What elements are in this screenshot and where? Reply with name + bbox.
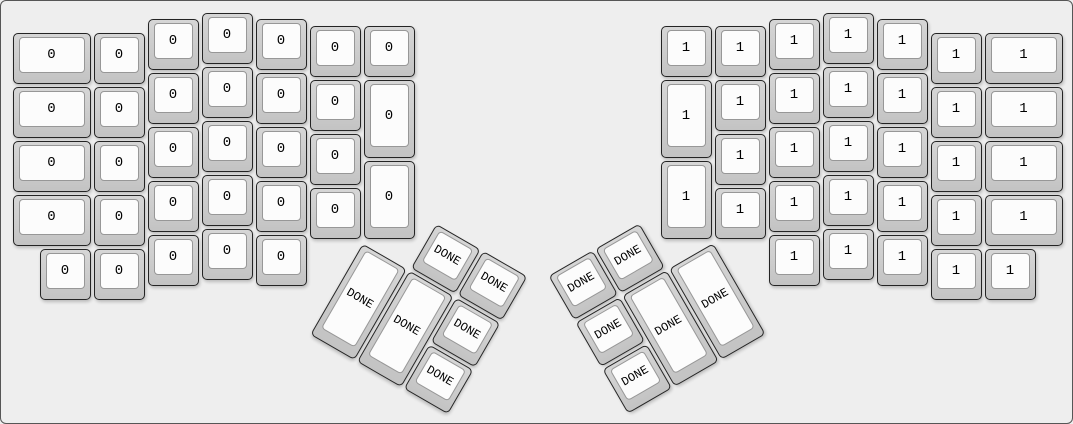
keycap-top-surface: 0 [262, 131, 301, 167]
keycap-top-surface: 0 [19, 37, 85, 73]
keycap-top-surface: 0 [208, 71, 247, 107]
keycap-label: 1 [952, 264, 960, 278]
keycap[interactable]: 0 [256, 127, 307, 178]
keycap[interactable]: 0 [13, 87, 91, 138]
keycap-label: DONE [345, 285, 376, 310]
keycap-top-surface: 1 [829, 179, 868, 215]
keycap-label: 1 [682, 190, 690, 204]
keycap-top-surface: 1 [937, 37, 976, 73]
keycap-top-surface: DONE [582, 303, 634, 354]
keycap-top-surface: DONE [468, 256, 520, 307]
keycap-top-surface: 1 [829, 125, 868, 161]
keycap-label: DONE [391, 312, 422, 337]
keycap-label: 1 [790, 196, 798, 210]
keycap-top-surface: 1 [883, 185, 922, 221]
keycap-top-surface: 0 [154, 239, 193, 275]
keycap-top-surface: 1 [721, 192, 760, 228]
keycap-top-surface: 0 [262, 239, 301, 275]
keycap-label: 0 [277, 142, 285, 156]
keycap[interactable]: 0 [256, 73, 307, 124]
keycap-top-surface: 0 [100, 91, 139, 127]
keycap-label: 0 [223, 82, 231, 96]
keycap-top-surface: 1 [721, 84, 760, 120]
keycap[interactable]: 1 [931, 87, 982, 138]
keycap-label: 0 [331, 203, 339, 217]
keycap[interactable]: 1 [877, 181, 928, 232]
keycap-label: 1 [1019, 48, 1027, 62]
keycap-top-surface: 0 [262, 77, 301, 113]
keycap[interactable]: 1 [661, 161, 712, 239]
keycap[interactable]: 1 [715, 80, 766, 131]
keycap-top-surface: 0 [154, 185, 193, 221]
keycap[interactable]: 1 [877, 73, 928, 124]
keycap-top-surface: 0 [100, 199, 139, 235]
keycap-top-surface: 1 [775, 23, 814, 59]
keycap-label: 0 [223, 244, 231, 258]
keycap-top-surface: 0 [208, 125, 247, 161]
keycap-label: 1 [736, 149, 744, 163]
keycap[interactable]: 1 [823, 175, 874, 226]
keycap-top-surface: 1 [721, 138, 760, 174]
keycap[interactable]: 1 [661, 80, 712, 158]
keycap-top-surface: 0 [262, 185, 301, 221]
keycap-label: 1 [952, 48, 960, 62]
keycap-top-surface: 0 [208, 233, 247, 269]
keycap-top-surface: 1 [667, 30, 706, 66]
keycap-label: 0 [115, 102, 123, 116]
keycap-label: 0 [385, 41, 393, 55]
keycap-top-surface: 0 [370, 84, 409, 147]
keycap-top-surface: 0 [100, 37, 139, 73]
keycap-top-surface: 1 [991, 145, 1057, 181]
keycap-label: 0 [115, 156, 123, 170]
keycap[interactable]: 1 [661, 26, 712, 77]
keycap-label: 1 [1006, 264, 1014, 278]
keycap[interactable]: 0 [202, 229, 253, 280]
keycap-top-surface: 0 [316, 192, 355, 228]
keycap[interactable]: 0 [310, 188, 361, 239]
keycap-label: 1 [1019, 102, 1027, 116]
keycap[interactable]: 1 [985, 33, 1063, 84]
keycap[interactable]: 0 [202, 175, 253, 226]
keycap-label: DONE [619, 363, 650, 388]
keycap-label: 0 [223, 136, 231, 150]
keycap-top-surface: 1 [829, 233, 868, 269]
keycap-label: 0 [223, 28, 231, 42]
keycap-top-surface: 1 [775, 131, 814, 167]
keycap[interactable]: 1 [877, 19, 928, 70]
keycap-top-surface: 1 [829, 17, 868, 53]
keycap-label: DONE [432, 242, 463, 267]
keycap-label: 0 [115, 48, 123, 62]
keycap-top-surface: 0 [370, 165, 409, 228]
keycap-label: DONE [565, 269, 596, 294]
keycap-top-surface: DONE [422, 229, 474, 280]
keycap-top-surface: 0 [154, 23, 193, 59]
keycap[interactable]: 1 [715, 188, 766, 239]
keycap-top-surface: 1 [829, 71, 868, 107]
keycap[interactable]: 1 [715, 134, 766, 185]
keycap[interactable]: 0 [202, 13, 253, 64]
keycap-top-surface: 1 [883, 131, 922, 167]
keycap-label: 0 [169, 250, 177, 264]
keycap[interactable]: 1 [931, 141, 982, 192]
keycap-label: DONE [425, 363, 456, 388]
keycap[interactable]: 1 [931, 195, 982, 246]
keycap-label: 0 [223, 190, 231, 204]
keycap-top-surface: 0 [19, 145, 85, 181]
keycap[interactable]: 0 [94, 33, 145, 84]
keycap-top-surface: 0 [46, 253, 85, 289]
keycap-label: 1 [898, 142, 906, 156]
keycap[interactable]: 1 [931, 33, 982, 84]
keycap-label: 1 [898, 250, 906, 264]
keycap-top-surface: 1 [991, 253, 1030, 289]
keycap[interactable]: 1 [877, 127, 928, 178]
keycap[interactable]: 1 [769, 127, 820, 178]
keycap-label: 1 [682, 41, 690, 55]
keycap-label: 0 [47, 156, 55, 170]
keycap[interactable]: 0 [13, 195, 91, 246]
keycap-label: 0 [331, 149, 339, 163]
keycap-top-surface: 0 [208, 17, 247, 53]
keycap-label: 1 [898, 88, 906, 102]
keycap[interactable]: 0 [148, 181, 199, 232]
keycap-label: DONE [452, 316, 483, 341]
keycap-top-surface: 0 [262, 23, 301, 59]
keycap-top-surface: 1 [937, 91, 976, 127]
keycap-label: 0 [47, 210, 55, 224]
keycap-top-surface: 0 [100, 145, 139, 181]
keycap-top-surface: 1 [937, 253, 976, 289]
keycap-label: 1 [844, 28, 852, 42]
keycap-label: DONE [479, 269, 510, 294]
keycap-label: 0 [277, 196, 285, 210]
keycap-label: 0 [115, 210, 123, 224]
keycap-label: 0 [169, 196, 177, 210]
keycap[interactable]: 1 [985, 249, 1036, 300]
keycap[interactable]: 1 [769, 19, 820, 70]
keycap-top-surface: 1 [775, 77, 814, 113]
keycap-label: 0 [61, 264, 69, 278]
keycap-label: DONE [612, 242, 643, 267]
keycap-label: 0 [277, 88, 285, 102]
keycap[interactable]: 1 [877, 235, 928, 286]
keycap-label: 1 [790, 250, 798, 264]
keycap[interactable]: 1 [715, 26, 766, 77]
keycap-top-surface: 0 [370, 30, 409, 66]
keycap-top-surface: 0 [316, 30, 355, 66]
keycap-label: 0 [385, 190, 393, 204]
keycap-top-surface: 0 [19, 199, 85, 235]
keycap-top-surface: 1 [991, 91, 1057, 127]
keycap[interactable]: 0 [202, 121, 253, 172]
keycap-label: 1 [952, 156, 960, 170]
keycap-label: 0 [169, 34, 177, 48]
keycap-top-surface: 1 [721, 30, 760, 66]
keycap[interactable]: 0 [94, 249, 145, 300]
keycap-label: 0 [47, 102, 55, 116]
keycap-label: 0 [277, 34, 285, 48]
keycap[interactable]: 1 [823, 229, 874, 280]
keycap[interactable]: 1 [823, 13, 874, 64]
keycap[interactable]: 0 [364, 26, 415, 77]
keycap[interactable]: 1 [769, 181, 820, 232]
keycap-label: 0 [169, 142, 177, 156]
keycap-label: 0 [169, 88, 177, 102]
keycap[interactable]: 0 [202, 67, 253, 118]
keycap-top-surface: 0 [316, 138, 355, 174]
keycap-top-surface: 1 [775, 239, 814, 275]
keycap[interactable]: 0 [310, 26, 361, 77]
keycap-top-surface: DONE [602, 229, 654, 280]
keycap[interactable]: 0 [148, 127, 199, 178]
keycap[interactable]: 0 [310, 134, 361, 185]
keycap-label: 1 [790, 34, 798, 48]
keycap[interactable]: 0 [13, 33, 91, 84]
keycap-top-surface: 1 [883, 23, 922, 59]
keycap[interactable]: 0 [148, 19, 199, 70]
keycap[interactable]: 0 [256, 19, 307, 70]
keycap[interactable]: 0 [13, 141, 91, 192]
keycap-top-surface: 1 [883, 77, 922, 113]
keycap[interactable]: 1 [823, 121, 874, 172]
keyboard-layout-canvas: 0000000000000000000000000000000011111111… [0, 0, 1073, 424]
keycap-top-surface: 0 [100, 253, 139, 289]
keycap-label: 1 [844, 82, 852, 96]
keycap-top-surface: DONE [555, 256, 607, 307]
keycap[interactable]: 0 [40, 249, 91, 300]
keycap-label: DONE [653, 312, 684, 337]
keycap[interactable]: 1 [769, 73, 820, 124]
keycap-label: 1 [682, 109, 690, 123]
keycap[interactable]: 0 [364, 80, 415, 158]
keycap-label: 0 [277, 250, 285, 264]
keycap-label: 1 [736, 41, 744, 55]
keycap-label: 1 [736, 203, 744, 217]
keycap[interactable]: 0 [148, 235, 199, 286]
keycap[interactable]: 1 [985, 87, 1063, 138]
keycap[interactable]: 1 [769, 235, 820, 286]
keycap-top-surface: 0 [316, 84, 355, 120]
keycap[interactable]: 0 [94, 141, 145, 192]
keycap-label: 1 [844, 244, 852, 258]
keycap-label: 1 [790, 88, 798, 102]
keycap[interactable]: 0 [310, 80, 361, 131]
keycap-top-surface: 1 [883, 239, 922, 275]
keycap[interactable]: 0 [148, 73, 199, 124]
keycap-top-surface: 0 [154, 131, 193, 167]
keycap[interactable]: 1 [985, 141, 1063, 192]
keycap-label: 0 [331, 41, 339, 55]
keycap[interactable]: 0 [256, 181, 307, 232]
keycap[interactable]: 1 [985, 195, 1063, 246]
keycap-top-surface: 0 [19, 91, 85, 127]
keycap-label: 1 [898, 34, 906, 48]
keycap-top-surface: 1 [991, 37, 1057, 73]
keycap-top-surface: 1 [937, 199, 976, 235]
keycap-label: 1 [1019, 210, 1027, 224]
keycap-top-surface: 1 [937, 145, 976, 181]
keycap-label: 1 [844, 190, 852, 204]
keycap-label: DONE [592, 316, 623, 341]
keycap-label: 0 [47, 48, 55, 62]
keycap-label: 1 [844, 136, 852, 150]
keycap-label: DONE [699, 285, 730, 310]
keycap-top-surface: 0 [154, 77, 193, 113]
keycap[interactable]: 0 [94, 87, 145, 138]
keycap-top-surface: 1 [775, 185, 814, 221]
keycap-label: 1 [952, 102, 960, 116]
keycap-label: 1 [790, 142, 798, 156]
keycap-top-surface: DONE [609, 350, 661, 401]
keycap-top-surface: 1 [991, 199, 1057, 235]
keycap-label: 0 [115, 264, 123, 278]
keycap-label: 1 [952, 210, 960, 224]
keycap-label: 0 [385, 109, 393, 123]
keycap[interactable]: 0 [364, 161, 415, 239]
keycap-label: 1 [736, 95, 744, 109]
keycap-label: 1 [1019, 156, 1027, 170]
keycap[interactable]: 0 [94, 195, 145, 246]
keycap-top-surface: 0 [208, 179, 247, 215]
keycap-top-surface: 1 [667, 84, 706, 147]
keycap[interactable]: 1 [931, 249, 982, 300]
keycap-top-surface: 1 [667, 165, 706, 228]
keycap[interactable]: 0 [256, 235, 307, 286]
keycap-label: 0 [331, 95, 339, 109]
keycap-label: 1 [898, 196, 906, 210]
keycap[interactable]: 1 [823, 67, 874, 118]
